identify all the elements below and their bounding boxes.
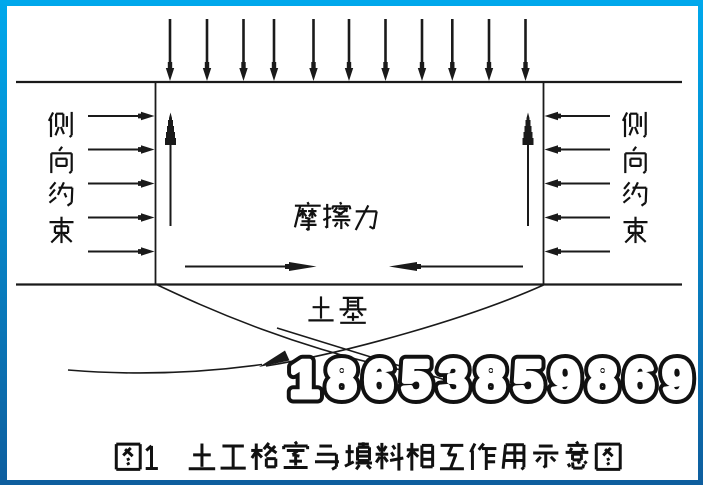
svg-text:18653859869: 18653859869 [290, 351, 700, 409]
